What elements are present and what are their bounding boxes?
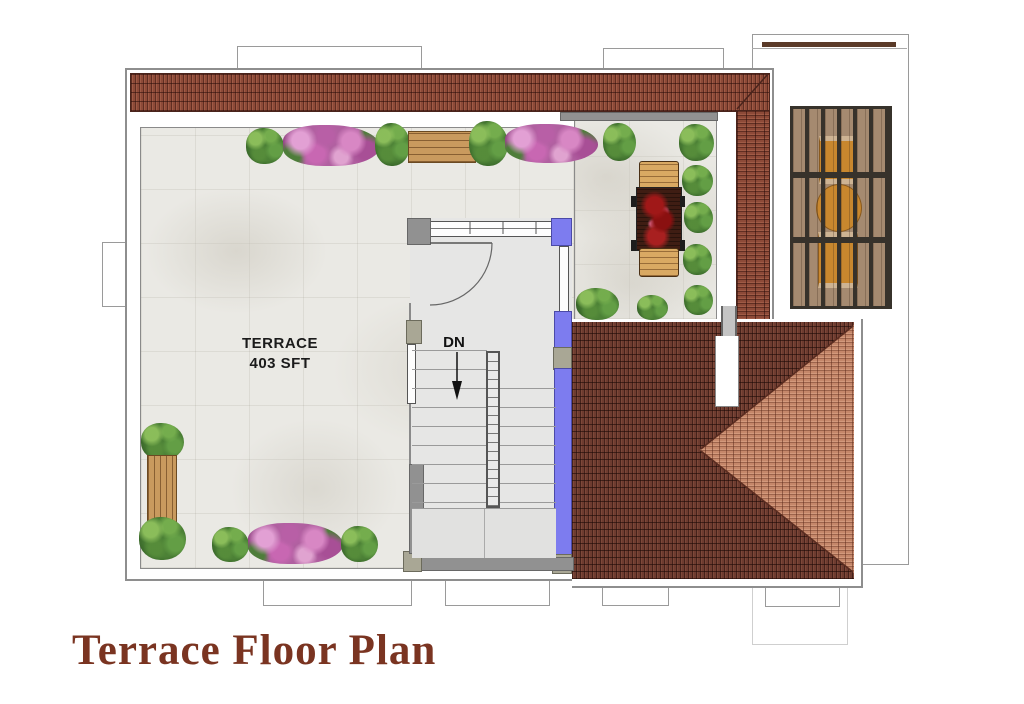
stair-railing [486, 351, 500, 508]
flower-bed [248, 523, 343, 564]
window-mid-line [431, 228, 553, 229]
lower-floor-outline-bottom-1 [263, 577, 412, 606]
stair-main-flight [412, 388, 556, 508]
plant-shrub [469, 121, 508, 166]
plant-shrub [603, 123, 636, 161]
dining-area-top-wall [560, 112, 718, 121]
pergola-beam-horizontal-1 [793, 172, 889, 178]
terrace-label-line2: 403 SFT [210, 354, 350, 374]
dining-armrest-3 [631, 240, 636, 251]
plant-shrub [212, 527, 249, 562]
plant-shrub [684, 202, 713, 233]
flower-bed [283, 125, 380, 166]
stairs-direction-label: DN [436, 334, 472, 352]
lower-floor-outline-bottom-2 [445, 577, 550, 606]
balcony-top-line [752, 48, 907, 49]
right-wall-blue-lower [554, 368, 572, 556]
roof-vent-notch [715, 336, 739, 407]
plant-shrub [246, 128, 284, 164]
lower-floor-outline-bottom-5 [765, 585, 840, 607]
flower-bed [505, 124, 598, 163]
plant-shrub [682, 165, 713, 196]
terrace-area-label: TERRACE 403 SFT [210, 334, 350, 378]
pergola-beams-vertical [793, 109, 889, 306]
landing-divider [484, 509, 485, 558]
dining-armrest-2 [680, 196, 685, 207]
dining-chair-bottom [639, 248, 679, 277]
top-roof-tile-strip [130, 73, 770, 112]
stair-room-corner-column-tl [407, 218, 431, 245]
pergola-beam-horizontal-2 [793, 237, 889, 243]
stair-upper-flight [412, 350, 487, 390]
floor-plan-canvas: DN TERRACE 403 SFT [0, 0, 1024, 704]
stair-room-corner-column-tr [551, 218, 572, 246]
pergola [790, 106, 892, 309]
plant-shrub [679, 124, 714, 161]
roof-vent-stub [721, 306, 737, 338]
right-wall-column-mid [553, 347, 572, 370]
dining-armrest-1 [631, 196, 636, 207]
stair-room-bottom-wall [410, 557, 574, 571]
plant-shrub [139, 517, 186, 560]
dining-table [636, 187, 682, 251]
plant-shrub [683, 244, 712, 275]
right-wall-blue-upper [554, 311, 572, 349]
left-wall-column-mid [406, 320, 422, 344]
stair-landing [412, 508, 556, 558]
stair-room-top-window [428, 221, 556, 237]
plant-shrub [341, 526, 378, 562]
plant-spider [576, 288, 619, 320]
page-title: Terrace Floor Plan [72, 626, 436, 675]
plant-shrub [375, 123, 410, 166]
plant-shrub [637, 295, 668, 320]
balcony-edge-strip [762, 42, 896, 47]
wood-planter-bench-top [408, 131, 476, 163]
right-roof-tile-strip [736, 110, 770, 325]
dining-chair-top [639, 161, 679, 190]
terrace-label-line1: TERRACE [210, 334, 350, 354]
plant-shrub [684, 285, 713, 315]
stair-room-right-window [559, 246, 569, 312]
